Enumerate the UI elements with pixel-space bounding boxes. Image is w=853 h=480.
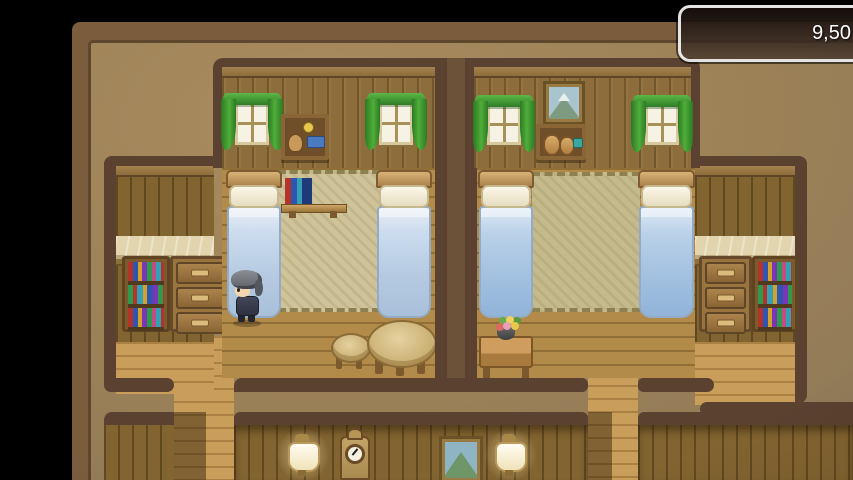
bed-blanket (639, 206, 694, 318)
bed-pillow (641, 185, 692, 208)
window-pane (379, 101, 413, 145)
stool-top (331, 333, 371, 363)
left-alcove-wall (116, 166, 214, 236)
drawer (176, 262, 224, 284)
clock-face (345, 444, 365, 464)
clock-finial (347, 428, 363, 440)
bed-blanket (377, 206, 431, 318)
drawer-chest[interactable] (170, 256, 230, 332)
window-pane (645, 103, 679, 145)
left-alcove-bottom-border (104, 378, 174, 392)
bed[interactable] (478, 170, 534, 318)
flowers (503, 322, 511, 330)
curtain-left (473, 101, 488, 152)
curtain-left (631, 101, 646, 152)
divider-bottom-border (447, 378, 465, 392)
window-with-curtains (228, 96, 276, 154)
gold-window: 9,50 (678, 5, 853, 62)
drawer (705, 312, 746, 334)
book-row (128, 285, 164, 308)
bed-pillow (229, 185, 279, 208)
floor-rug (532, 172, 640, 312)
character-shadow (233, 320, 261, 327)
room-divider-wall (447, 58, 465, 392)
bed-pillow (379, 185, 429, 208)
table-top (479, 336, 533, 368)
lamp-shade (288, 442, 320, 472)
gold-amount: 9,50 (681, 8, 853, 59)
wall-beam (222, 67, 438, 78)
bookshelf[interactable] (752, 256, 798, 332)
drawer (705, 262, 746, 284)
curtain-left (365, 99, 380, 150)
table-top (367, 320, 437, 368)
bookshelf[interactable] (122, 256, 170, 332)
left-room-right-border (435, 58, 447, 392)
book-row (758, 262, 792, 285)
mountain (445, 452, 477, 478)
player-character[interactable] (229, 270, 265, 328)
flower-table[interactable] (479, 330, 533, 382)
doll-item (288, 134, 303, 152)
bed-pillow (481, 185, 531, 208)
shelf-books (285, 178, 341, 204)
mountain-painting[interactable] (543, 81, 585, 125)
bottom-room-wall-right (638, 412, 853, 480)
corridor-center-shadow (588, 412, 612, 480)
game-viewport[interactable]: 9,50 (0, 0, 853, 480)
window-with-curtains (638, 98, 686, 154)
drawer (176, 312, 224, 334)
lamp-shade (495, 442, 527, 472)
shelf-bracket (330, 211, 337, 218)
stool[interactable] (331, 331, 367, 373)
bed[interactable] (376, 170, 432, 318)
curtain-right (412, 99, 427, 150)
mountain-painting[interactable] (439, 436, 483, 480)
book-row (128, 308, 164, 331)
teal-item (573, 138, 583, 148)
grandfather-clock[interactable] (338, 428, 372, 480)
right-alcove-floor (695, 342, 795, 405)
character-body (236, 296, 259, 316)
drawer-chest[interactable] (699, 256, 752, 332)
lamp-bracket (505, 470, 513, 476)
curtain-right (678, 101, 693, 152)
right-alcove-bottom-border (700, 402, 853, 416)
round-table[interactable] (367, 320, 433, 378)
shelf-bracket (289, 211, 296, 218)
wall-bookshelf[interactable] (281, 172, 345, 218)
snow-cap (558, 93, 570, 101)
window-pane (487, 103, 521, 145)
drawer (705, 287, 746, 309)
window-pane (235, 101, 269, 145)
character-ponytail (255, 280, 263, 296)
lamp-bracket (298, 470, 306, 476)
right-room-bottom-border-b (638, 378, 714, 392)
wall-beam (695, 166, 795, 177)
bed[interactable] (638, 170, 695, 318)
right-room-bottom-border-a (465, 378, 588, 392)
wall-lamp[interactable] (288, 434, 316, 478)
gold-item (303, 122, 314, 133)
book-row (758, 285, 792, 308)
book-row (758, 308, 792, 331)
drawer (176, 287, 224, 309)
curtain-left (221, 99, 236, 150)
bed-blanket (479, 206, 533, 318)
wall-lamp[interactable] (495, 434, 523, 478)
book-row (128, 262, 164, 285)
wall-beam (116, 166, 214, 177)
wall-beam (474, 67, 691, 78)
pot-shelf[interactable] (536, 124, 586, 160)
right-alcove-wall (695, 166, 795, 236)
left-room-bottom-border (234, 378, 447, 392)
blue-box-item (307, 136, 325, 148)
curtain-right (520, 101, 535, 152)
item-shelf[interactable] (281, 114, 329, 160)
bottom-room-wall-left (104, 412, 174, 480)
window-with-curtains (372, 96, 420, 154)
window-with-curtains (480, 98, 528, 154)
corridor-left-shadow (174, 412, 206, 480)
